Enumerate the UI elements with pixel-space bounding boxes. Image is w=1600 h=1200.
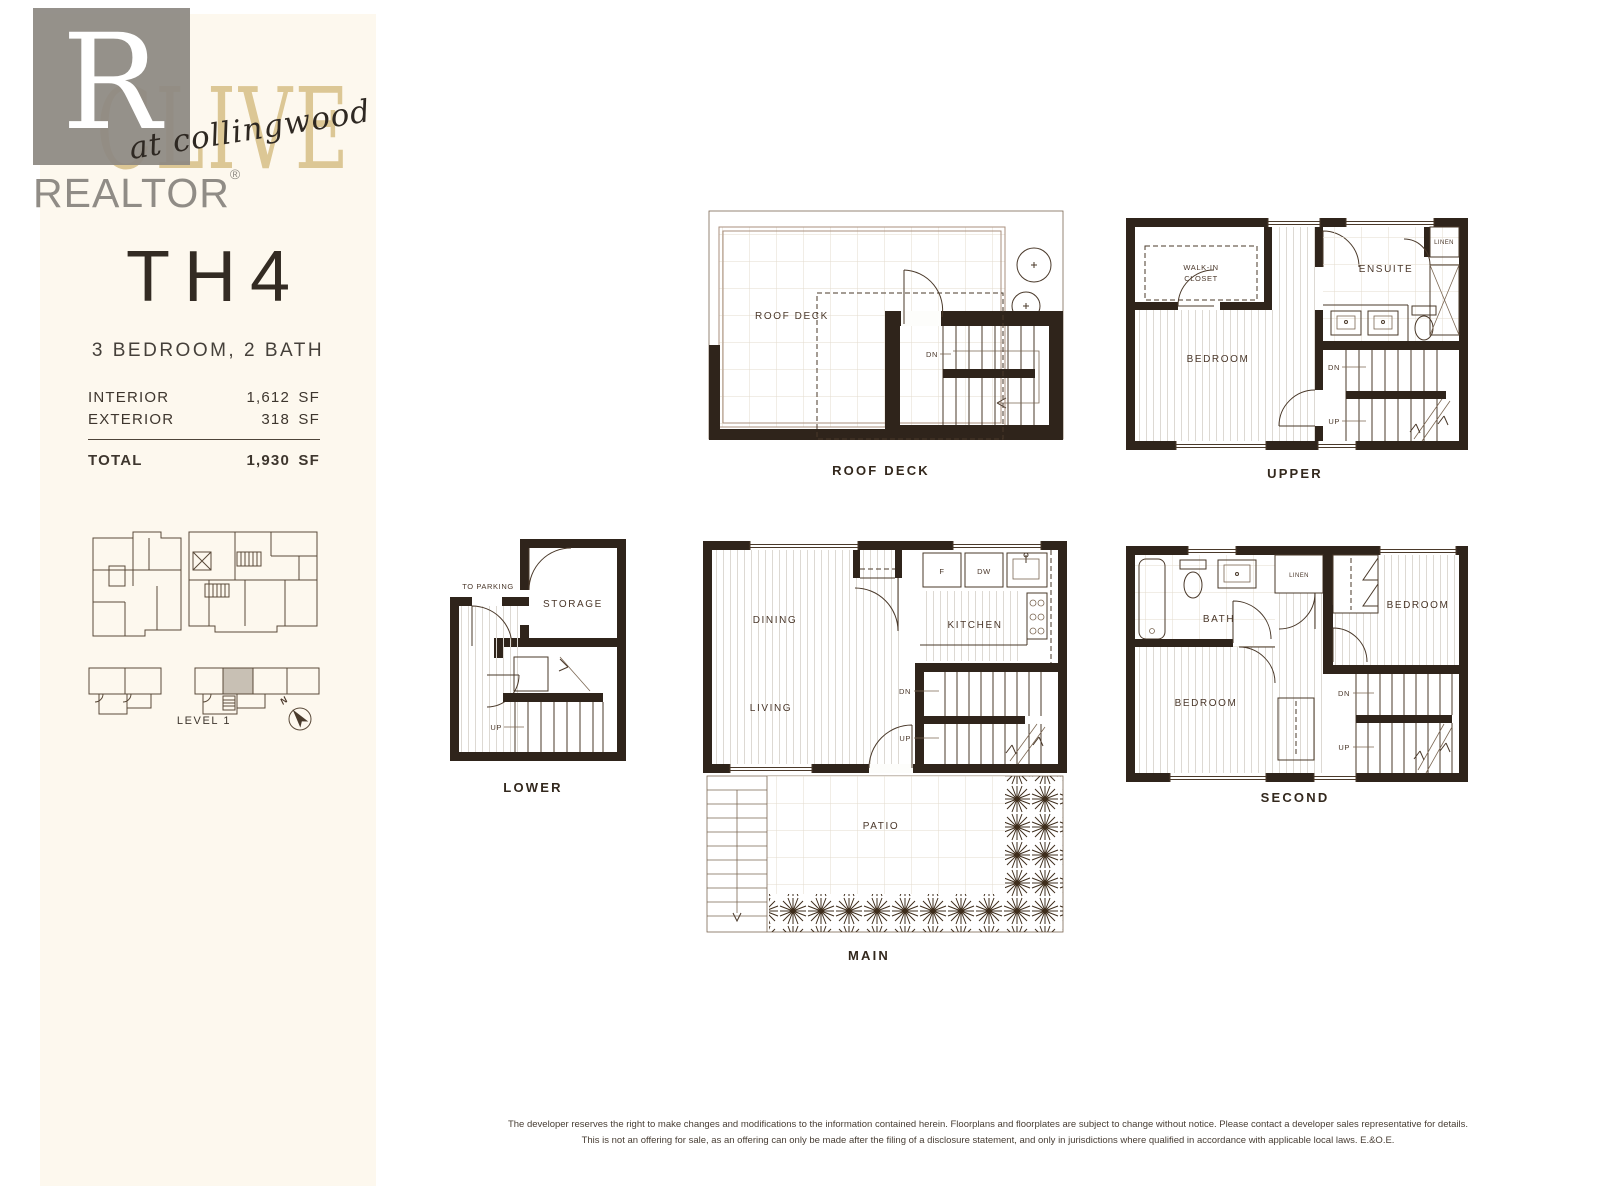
registered-mark: ® — [230, 166, 241, 182]
main-plan: DINING LIVING F DW KITCHEN DN UP PATIO — [695, 533, 1075, 935]
unit-title: TH4 — [40, 236, 376, 318]
upper-bedroom-label: BEDROOM — [1187, 354, 1250, 365]
bath-label: BATH — [1203, 614, 1235, 625]
keyplan-level-label: LEVEL 1 — [177, 715, 231, 727]
patio-label: PATIO — [863, 821, 900, 832]
patio-hedge-bottom — [769, 894, 1005, 932]
keyplan-footprints — [89, 668, 319, 714]
patio: PATIO — [707, 776, 1063, 932]
upper-up-label: UP — [1328, 417, 1340, 426]
roof-dn-label: DN — [926, 350, 938, 359]
second-bedroom-right-label: BEDROOM — [1387, 600, 1450, 611]
lower-up-label: UP — [490, 723, 502, 732]
north-arrow-icon: N — [278, 694, 311, 730]
second-bedroom-left-label: BEDROOM — [1175, 698, 1238, 709]
storage-label: STORAGE — [543, 599, 603, 610]
second-linen-label: LINEN — [1289, 573, 1309, 579]
main-dn-label: DN — [899, 687, 911, 696]
upper-plan: WALK-IN CLOSET BEDROOM LINEN ENSUITE DN … — [1118, 210, 1476, 458]
to-parking-label: TO PARKING — [462, 582, 514, 591]
dining-label: DINING — [753, 615, 798, 626]
disclaimer-line-1: The developer reserves the right to make… — [376, 1117, 1600, 1133]
upper-linen-label: LINEN — [1434, 240, 1454, 246]
keyplan: LEVEL 1 N — [85, 522, 325, 742]
main-up-label: UP — [899, 734, 911, 743]
disclaimer-line-2: This is not an offering for sale, as an … — [376, 1133, 1600, 1149]
main-caption: MAIN — [848, 948, 890, 963]
realtor-watermark-label: REALTOR® — [33, 166, 241, 217]
roof-deck-room-label: ROOF DECK — [755, 311, 829, 322]
area-table: INTERIOR 1,612 SF EXTERIOR 318 SF TOTAL … — [88, 386, 320, 471]
second-up-label: UP — [1338, 743, 1350, 752]
dishwasher-label: DW — [977, 567, 991, 576]
area-row-exterior: EXTERIOR 318 SF — [88, 408, 320, 430]
roof-deck-plan: DN ROOF DECK — [695, 207, 1075, 453]
second-dn-label: DN — [1338, 689, 1350, 698]
lower-plan: TO PARKING STORAGE UP — [440, 535, 630, 765]
fridge-label: F — [939, 567, 944, 576]
roof-plants-icon — [1012, 248, 1051, 320]
storage-door-swing — [529, 548, 571, 590]
walkin-label-1: WALK-IN — [1183, 263, 1218, 272]
roof-deck-caption: ROOF DECK — [832, 463, 930, 478]
upper-stairs: DN UP — [1328, 350, 1450, 441]
second-caption: SECOND — [1261, 790, 1330, 805]
area-row-total: TOTAL 1,930 SF — [88, 439, 320, 471]
living-label: LIVING — [750, 703, 792, 714]
second-plan: BATH LINEN BEDROOM BEDROOM DN UP — [1118, 538, 1476, 790]
unit-subtitle: 3 BEDROOM, 2 BATH — [40, 340, 376, 362]
patio-hedge-right — [1005, 776, 1063, 932]
svg-text:N: N — [278, 694, 290, 706]
floorplan-brochure-page: { "colors": { "panel": "#FDF8EE", "ink":… — [0, 0, 1600, 1200]
kitchen-label: KITCHEN — [947, 620, 1002, 631]
lower-caption: LOWER — [503, 780, 562, 795]
upper-caption: UPPER — [1267, 466, 1323, 481]
ensuite-label: ENSUITE — [1359, 264, 1414, 275]
disclaimer: The developer reserves the right to make… — [376, 1117, 1600, 1149]
upper-dn-label: DN — [1328, 363, 1340, 372]
walkin-label-2: CLOSET — [1184, 274, 1218, 283]
keyplan-building — [93, 532, 317, 636]
second-closet — [1333, 555, 1378, 613]
keyplan-highlight-unit — [223, 668, 253, 694]
area-row-interior: INTERIOR 1,612 SF — [88, 386, 320, 408]
second-stairs: DN UP — [1338, 674, 1452, 773]
patio-stair-arrow — [733, 913, 741, 921]
